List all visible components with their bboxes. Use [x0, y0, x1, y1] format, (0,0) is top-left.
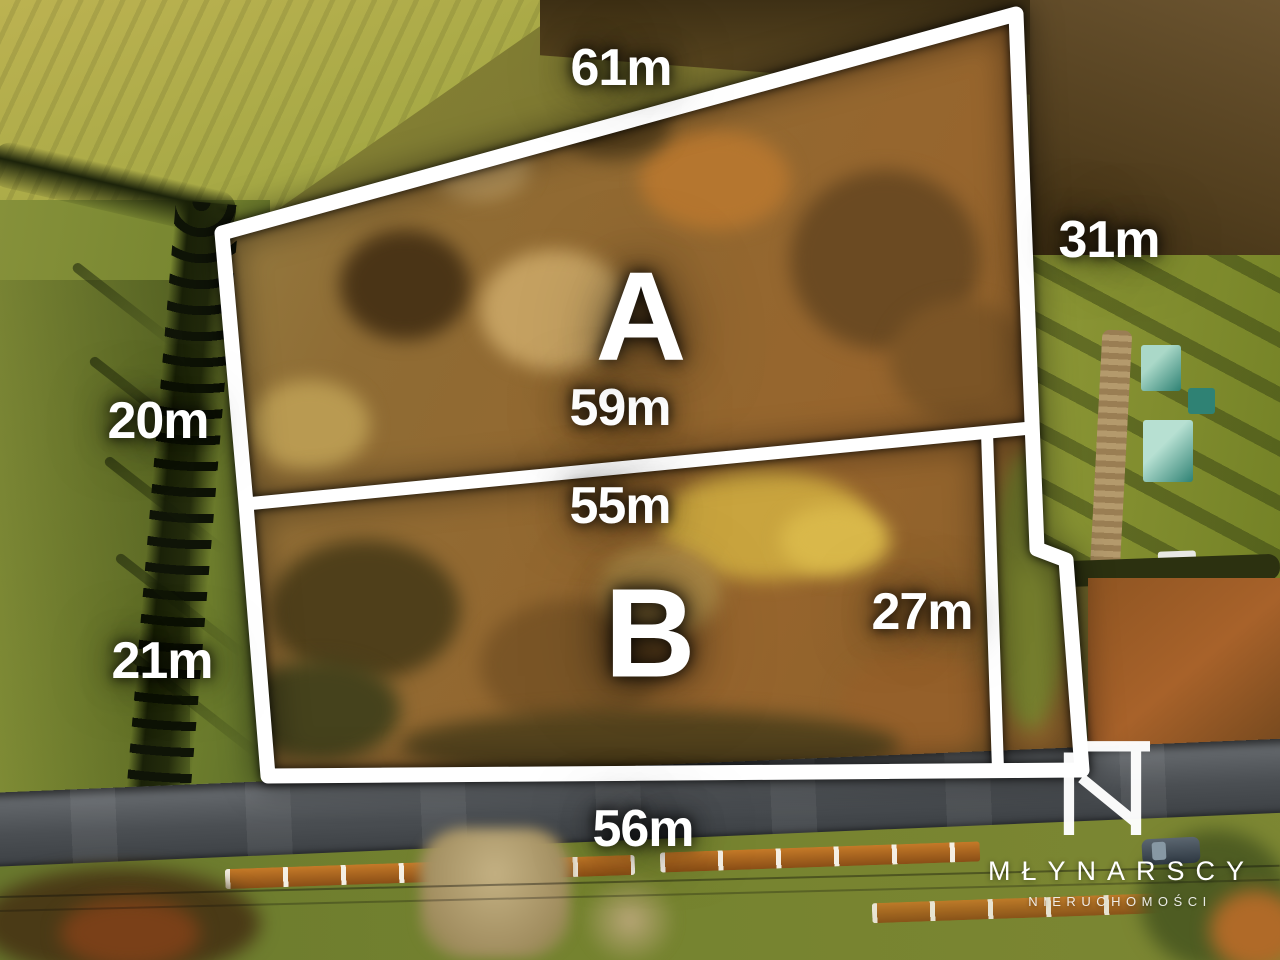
inner-strip-line [987, 432, 998, 770]
logo-diagonal [1085, 781, 1130, 818]
dim-label-inner-b: 27m [871, 582, 972, 642]
aerial-parcel-photo: 61m 31m 20m 59m 55m 27m 21m 56m A B MŁYN… [0, 0, 1280, 960]
parcel-a-letter: A [596, 244, 687, 389]
dim-label-left-a: 20m [107, 391, 208, 451]
m-monogram-icon [1056, 737, 1150, 835]
dim-label-top-a: 61m [570, 38, 671, 98]
dim-label-right-a: 31m [1058, 210, 1159, 270]
dim-label-top-b: 55m [569, 476, 670, 536]
parcel-b-letter: B [605, 561, 696, 706]
dim-label-left-b: 21m [111, 631, 212, 691]
brand-tagline: NIERUCHOMOŚCI [988, 894, 1252, 909]
dim-label-bottom-b: 56m [592, 799, 693, 859]
brand-name: MŁYNARSCY [988, 856, 1252, 887]
